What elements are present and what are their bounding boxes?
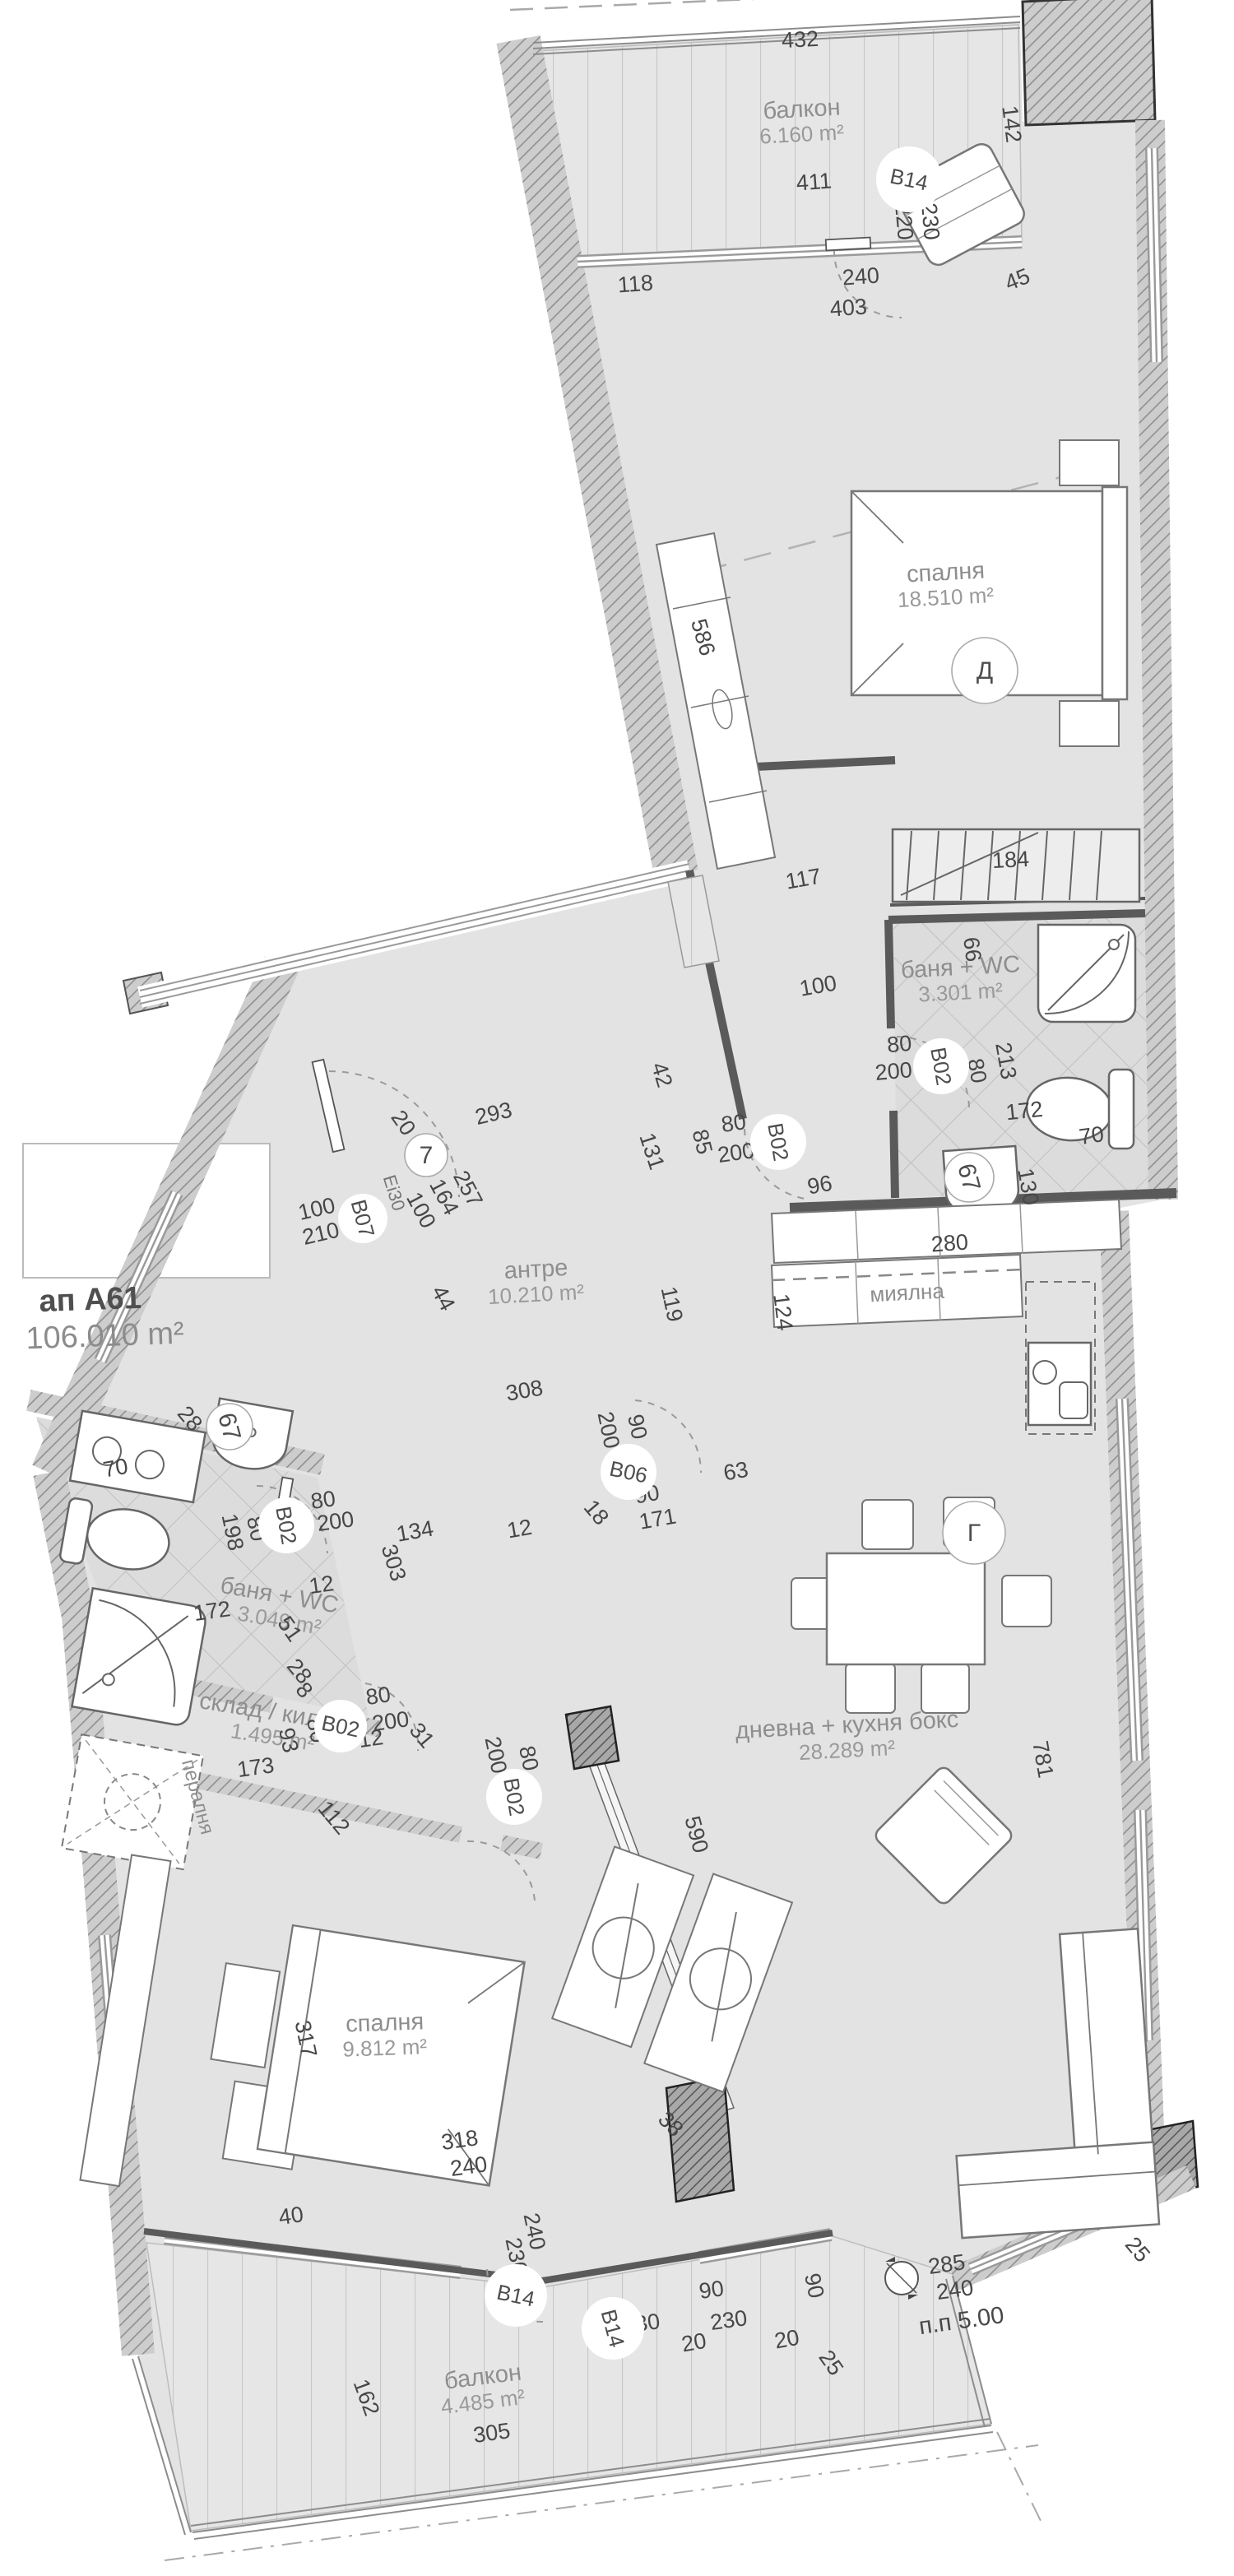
marker-text: 7 — [420, 1142, 434, 1169]
chair-symbol — [862, 1500, 913, 1549]
dimension-label: 142 — [997, 104, 1026, 144]
dimension-label: 200 — [315, 1506, 355, 1536]
door-marker: B02 — [750, 1114, 806, 1170]
dimension-label: 240 — [842, 262, 880, 290]
dimension-label: 20 — [680, 2328, 708, 2357]
dimension-label: 230 — [708, 2305, 749, 2335]
dimension-label: 70 — [101, 1454, 130, 1483]
dimension-label: 90 — [800, 2271, 829, 2300]
dimension-label: 40 — [277, 2202, 305, 2230]
door-marker: 67 — [206, 1404, 253, 1450]
door-marker: 67 — [944, 1153, 994, 1202]
shower-symbol — [72, 1588, 207, 1726]
dimension-label: 12 — [505, 1515, 534, 1543]
kitchen-sink-symbol — [1028, 1343, 1091, 1425]
door-marker: B14 — [582, 2297, 644, 2360]
door-marker: B06 — [601, 1444, 656, 1500]
dimension-label: 90 — [698, 2276, 726, 2304]
floor-plan-page: балкон6.160 m²спалня18.510 m²баня + WC3.… — [0, 0, 1234, 2576]
dimension-label: 403 — [829, 294, 868, 321]
dimension-label: 25 — [1120, 2232, 1155, 2267]
dimension-label: 80 — [364, 1682, 392, 1710]
dining-table-symbol — [827, 1553, 985, 1664]
dimension-label: 90 — [623, 1412, 652, 1441]
marker-text: Г — [967, 1520, 981, 1547]
door-marker: B02 — [913, 1038, 969, 1094]
floor-plan-canvas: балкон6.160 m²спалня18.510 m²баня + WC3.… — [0, 0, 1234, 2576]
dimension-label: 70 — [1078, 1121, 1106, 1149]
room-area-label: 9.812 m² — [342, 2034, 428, 2062]
unit-title: ап А61 — [39, 1281, 142, 1319]
marker-text: Д — [977, 657, 993, 685]
dimension-label: 172 — [1004, 1097, 1044, 1126]
dimension-label: 240 — [935, 2275, 975, 2304]
dimension-label: 80 — [720, 1109, 748, 1137]
dishwasher-label: миялна — [870, 1279, 945, 1307]
door-marker: 7 — [405, 1134, 448, 1177]
nightstand — [1060, 701, 1119, 746]
door-marker: B14 — [485, 2264, 547, 2327]
dimension-label: 12 — [308, 1571, 336, 1599]
dimension-label: 184 — [991, 847, 1030, 873]
pillar — [566, 1706, 619, 1769]
dimension-label: 285 — [926, 2249, 967, 2279]
room-area-label: 10.210 m² — [487, 1279, 585, 1309]
room-area-label: 28.289 m² — [798, 1735, 896, 1765]
door-marker: B14 — [876, 146, 942, 212]
dimension-label: 200 — [874, 1057, 913, 1085]
dimension-label: 63 — [721, 1457, 750, 1486]
pillar — [666, 2077, 734, 2202]
dimension-label: 432 — [781, 26, 819, 53]
dimension-label: 96 — [805, 1171, 834, 1200]
dimension-label: 411 — [796, 169, 833, 196]
unit-area: 106.010 m² — [26, 1316, 185, 1357]
dimension-label: 172 — [192, 1596, 232, 1626]
dimension-label: 280 — [930, 1229, 969, 1256]
chair-symbol — [1002, 1576, 1051, 1627]
chair-symbol — [921, 1664, 969, 1713]
chair-symbol — [846, 1664, 895, 1713]
door-marker: B02 — [314, 1700, 367, 1752]
room-area-label: 6.160 m² — [759, 119, 845, 148]
shower-symbol — [1038, 925, 1135, 1022]
door-marker: Г — [943, 1502, 1005, 1564]
dimension-label: 93 — [274, 1725, 304, 1755]
room-label: спалня — [346, 2008, 424, 2037]
window-right-top — [1152, 148, 1157, 362]
dimension-label: 200 — [716, 1138, 756, 1167]
door-marker: B02 — [258, 1497, 314, 1553]
dimension-label: 305 — [471, 2418, 512, 2448]
dimension-label: 20 — [772, 2325, 801, 2354]
dimension-label: 124 — [768, 1293, 797, 1332]
dimension-label: 66 — [958, 935, 986, 963]
room-area-label: 18.510 m² — [897, 583, 995, 612]
nightstand — [1060, 440, 1119, 485]
dimension-label: 240 — [448, 2151, 489, 2181]
dimension-label: 80 — [886, 1031, 913, 1058]
washing-machine-symbol — [62, 1734, 203, 1869]
door-marker: B02 — [486, 1769, 542, 1825]
dimension-label: 318 — [439, 2125, 480, 2155]
door-marker: B07 — [338, 1194, 387, 1243]
dimension-label: 173 — [235, 1752, 276, 1782]
room-area-label: 3.301 m² — [918, 977, 1004, 1006]
dimension-label: 118 — [617, 271, 654, 298]
door-marker: Д — [952, 638, 1018, 703]
dimension-label: 80 — [514, 1743, 544, 1773]
